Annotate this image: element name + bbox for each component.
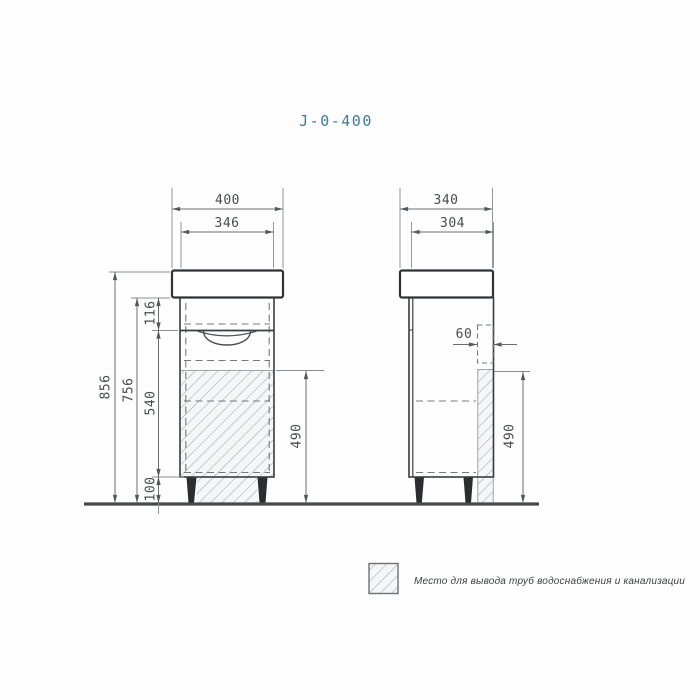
dim-body-height: 756	[122, 378, 137, 403]
cabinet-body-side	[409, 298, 494, 478]
legend: Место для вывода труб водоснабжения и ка…	[369, 564, 685, 594]
front-left-leg	[187, 477, 197, 503]
front-right-leg	[258, 477, 268, 503]
front-pipe-zone-hatch-below	[197, 477, 258, 504]
dim-total-height: 856	[99, 375, 114, 400]
dim-front-inner-width: 346	[215, 216, 240, 231]
dim-lower-height: 540	[144, 391, 159, 416]
dim-side-top-depth: 340	[434, 193, 459, 208]
dim-side-clearance: 490	[503, 424, 518, 449]
sink-top-side	[400, 271, 493, 298]
side-clearance-dimension: 490	[494, 372, 530, 504]
side-top-dimensions: 340 304	[400, 188, 494, 268]
technical-drawing-page: J-0-400	[0, 0, 700, 700]
dim-front-clearance: 490	[290, 424, 305, 449]
front-top-dimensions: 400 346	[172, 188, 283, 268]
dim-drawer-height: 116	[144, 301, 159, 326]
front-clearance-dimension: 490	[276, 371, 324, 504]
height-dimensions: 856 756 116 540 100	[99, 272, 185, 514]
dimension-drawing: J-0-400	[0, 0, 700, 700]
dim-front-top-width: 400	[215, 193, 240, 208]
legend-text: Место для вывода труб водоснабжения и ка…	[414, 575, 685, 587]
front-view	[172, 271, 283, 504]
sink-top-front	[172, 271, 283, 298]
dim-side-inner-depth: 304	[440, 216, 465, 231]
dim-back-gap: 60	[456, 327, 473, 342]
dim-leg-height: 100	[144, 477, 159, 502]
drawing-title: J-0-400	[299, 112, 373, 130]
hatch-swatch	[369, 564, 398, 594]
side-view	[400, 271, 494, 504]
side-back-leg	[464, 477, 474, 503]
side-front-leg	[415, 477, 425, 503]
